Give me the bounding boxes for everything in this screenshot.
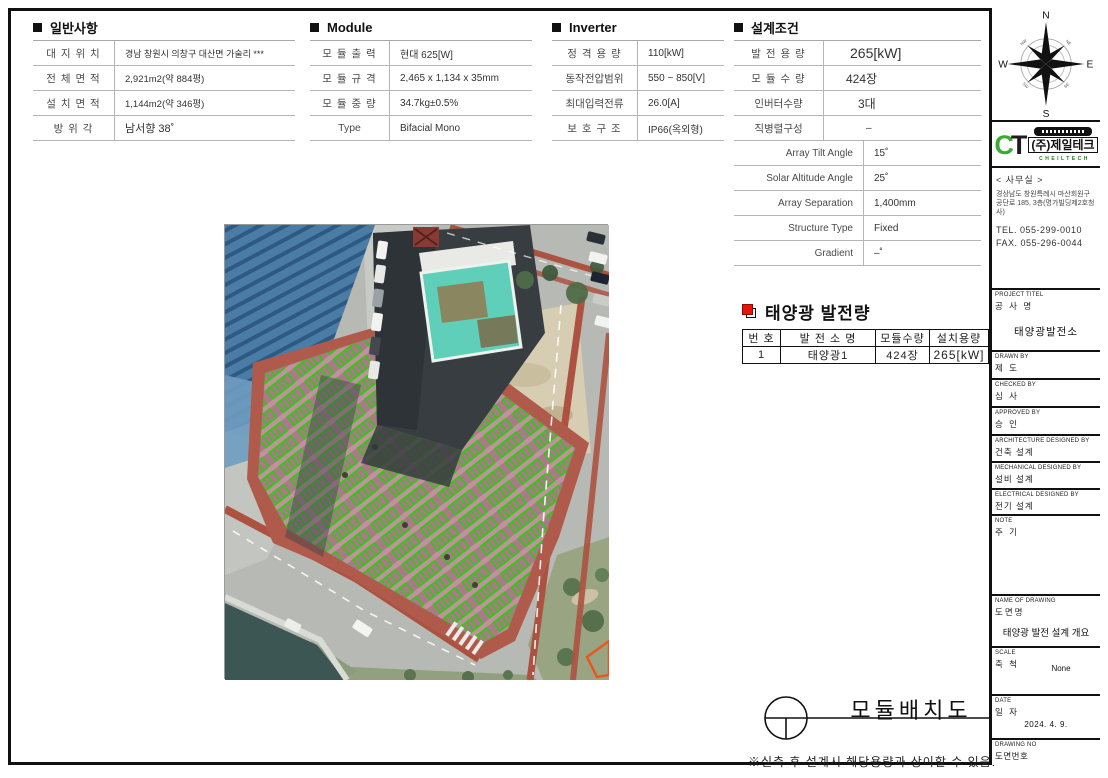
section-bullet-icon [310,23,319,32]
drawing-name-value: 태양광 발전 설계 개요 [992,625,1100,639]
section-inverter: Inverter 정 격 용 량110[kW] 동작전압범위550 ~ 850[… [552,18,724,141]
field-value: 110[kW] [638,48,724,59]
svg-text:S: S [1043,109,1050,120]
section-design: 설계조건 발 전 용 량265[kW] 모 듈 수 량424장 인버터수량3대 … [734,18,981,266]
field-label: 모 듈 중 량 [310,91,390,115]
field-value: Bifacial Mono [390,123,532,134]
field-value: IP66(옥외형) [638,121,724,136]
office-info-cell: < 사무실 > 경상남도 창원특례시 마산회원구 공단로 185, 3층(명가빌… [992,168,1100,290]
svg-text:NE: NE [1065,39,1073,47]
scale-cell: SCALE 축 척 None [992,648,1100,696]
mechanical-designer-cell: MECHANICAL DESIGNED BY 설비 설계 [992,463,1100,490]
section-title: 설계조건 [751,18,799,37]
field-value: 265[kW] [824,45,981,61]
footnote: ※실측 후 설계시 해당용량과 상이할 수 있음. [651,753,996,770]
drawing-sheet: 일반사항 대 지 위 치경남 창원시 의창구 대산면 가술리 *** 전 체 면… [8,8,1094,765]
drawing-title: 모듈배치도 [831,693,991,725]
col-header: 발 전 소 명 [781,330,876,347]
field-label: 방 위 각 [33,116,115,140]
field-value: 25˚ [864,173,981,184]
svg-text:SE: SE [1063,81,1071,89]
office-tel: TEL. 055-299-0010 [996,224,1096,237]
svg-text:NW: NW [1019,38,1028,47]
site-layout-map [224,224,608,679]
field-value: 424장 [824,70,981,87]
section-module: Module 모 듈 출 력현대 625[W] 모 듈 규 격2,465 x 1… [310,18,532,141]
field-label: 대 지 위 치 [33,41,115,65]
field-value: 550 ~ 850[V] [638,73,724,84]
field-label: 전 체 면 적 [33,66,115,90]
section-title: Module [327,20,373,35]
field-value: 34.7kg±0.5% [390,98,532,109]
section-bullet-icon [552,23,561,32]
field-value: 2,465 x 1,134 x 35mm [390,73,532,84]
company-logo-cell: CT (주)제일테크 CHEILTECH [992,122,1100,168]
section-bullet-icon [33,23,42,32]
field-label: 동작전압범위 [552,66,638,90]
date-value: 2024. 4. 9. [992,720,1100,729]
drawn-by-cell: DRAWN BY 제 도 [992,352,1100,380]
svg-text:E: E [1086,60,1093,71]
title-block: N S E W NE NW SE SW CT (주)제일테크 CHEILTECH… [989,8,1100,765]
note-cell: NOTE 주 기 [992,516,1100,596]
section-title: Inverter [569,20,617,35]
drawing-no-cell: DRAWING NO 도면번호 [992,740,1100,772]
project-title-value: 태양광발전소 [992,324,1100,339]
field-label: 모 듈 수 량 [734,66,824,90]
field-value: 1,144m2(약 346평) [115,96,295,110]
electrical-designer-cell: ELECTRICAL DESIGNED BY 전기 설계 [992,490,1100,516]
field-value: 현대 625[W] [390,46,532,61]
architecture-designer-cell: ARCHITECTURE DESIGNED BY 건축 설계 [992,436,1100,463]
svg-text:W: W [998,60,1008,71]
approved-by-cell: APPROVED BY 승 인 [992,408,1100,436]
compass-cell: N S E W NE NW SE SW [992,8,1100,122]
col-header: 모듈수량 [876,330,930,347]
field-label: 발 전 용 량 [734,41,824,65]
field-label: 인버터수량 [734,91,824,115]
satellite-image [225,225,609,680]
ct-monogram-icon: CT [994,132,1024,159]
field-value: – [824,123,981,134]
field-label: Type [310,116,390,140]
field-value: Fixed [864,223,981,234]
field-value: 26.0[A] [638,98,724,109]
field-value: 3대 [824,95,981,112]
field-label: Structure Type [734,216,864,240]
field-label: 보 호 구 조 [552,116,638,140]
generation-table: 번 호 발 전 소 명 모듈수량 설치용량 1 태양광1 424장 265[kW… [742,329,989,364]
field-value: –˚ [864,248,981,259]
field-value: 남서향 38˚ [115,120,295,136]
field-label: 모 듈 출 력 [310,41,390,65]
cell-no: 1 [743,347,781,364]
field-label: Gradient [734,241,864,265]
cell-plant-name: 태양광1 [781,347,876,364]
logo-badge-icon [1034,127,1092,136]
field-value: 1,400mm [864,198,981,209]
scale-value: None [1022,664,1100,673]
field-label: 직병렬구성 [734,116,824,140]
date-cell: DATE 일 자 2024. 4. 9. [992,696,1100,740]
company-name-kr: (주)제일테크 [1028,137,1097,153]
table-row: 1 태양광1 424장 265[kW] [743,347,989,364]
office-fax: FAX. 055-296-0044 [996,237,1096,250]
field-label: 모 듈 규 격 [310,66,390,90]
field-label: 설 치 면 적 [33,91,115,115]
field-label: Array Tilt Angle [734,141,864,165]
compass-icon: N S E W NE NW SE SW [992,8,1100,120]
company-name-en: CHEILTECH [1036,154,1090,163]
drawing-name-cell: NAME OF DRAWING 도면명 태양광 발전 설계 개요 [992,596,1100,648]
company-logo: CT (주)제일테크 CHEILTECH [992,122,1100,166]
field-value: 2,921m2(약 884평) [115,71,295,85]
generation-section-title: 태양광 발전량 [742,299,871,324]
project-title-cell: PROJECT TITEL 공 사 명 태양광발전소 [992,290,1100,352]
red-square-icon [742,304,757,319]
field-label: Array Separation [734,191,864,215]
checked-by-cell: CHECKED BY 심 사 [992,380,1100,408]
section-title: 일반사항 [50,18,98,37]
field-label: 정 격 용 량 [552,41,638,65]
table-header-row: 번 호 발 전 소 명 모듈수량 설치용량 [743,330,989,347]
svg-text:N: N [1042,10,1049,21]
cell-module-count: 424장 [876,347,930,364]
col-header: 번 호 [743,330,781,347]
section-general: 일반사항 대 지 위 치경남 창원시 의창구 대산면 가술리 *** 전 체 면… [33,18,295,141]
field-value: 경남 창원시 의창구 대산면 가술리 *** [115,47,295,60]
office-address-line2: 공단로 185, 3층(명가빌딩제2호청사) [996,199,1096,217]
field-value: 15˚ [864,148,981,159]
field-label: Solar Altitude Angle [734,166,864,190]
cell-capacity: 265[kW] [930,347,989,364]
col-header: 설치용량 [930,330,989,347]
office-address-line1: 경상남도 창원특례시 마산회원구 [996,190,1096,199]
field-label: 최대입력전류 [552,91,638,115]
section-bullet-icon [734,23,743,32]
office-header: < 사무실 > [996,173,1096,186]
